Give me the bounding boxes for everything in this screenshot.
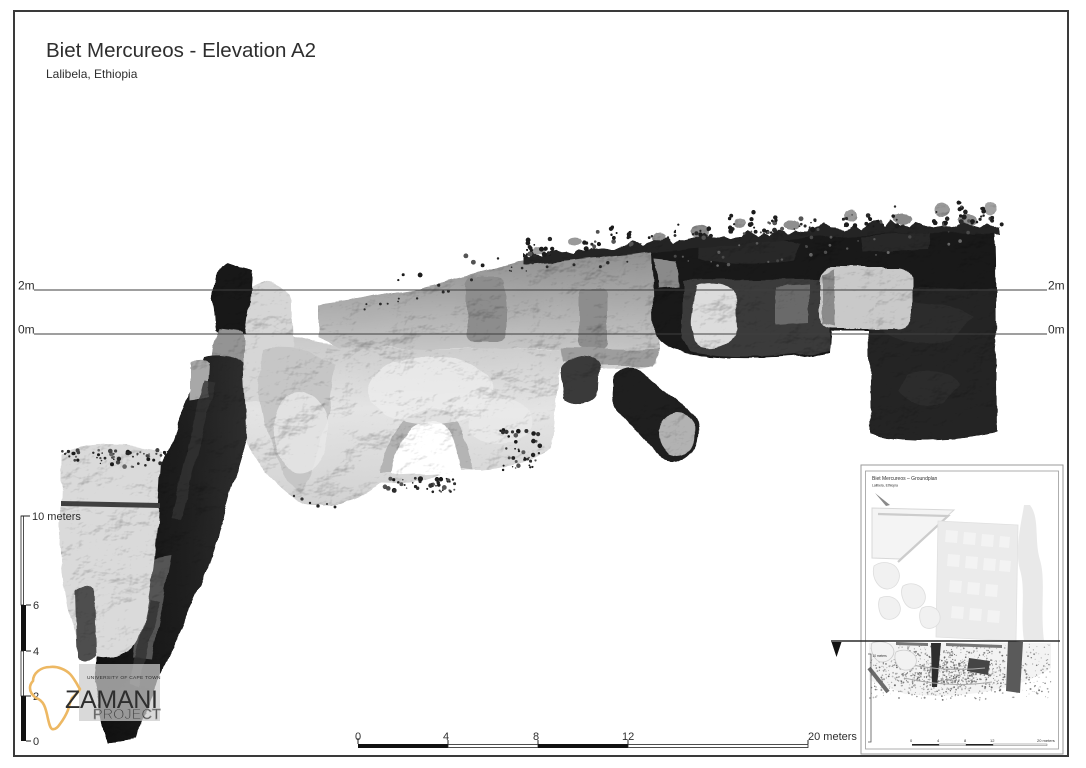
svg-text:4: 4 bbox=[33, 646, 39, 658]
svg-text:0: 0 bbox=[355, 731, 361, 743]
svg-text:0m: 0m bbox=[1048, 323, 1065, 337]
svg-text:20 meters: 20 meters bbox=[1037, 738, 1055, 743]
svg-text:PROJECT: PROJECT bbox=[93, 707, 161, 723]
svg-text:2m: 2m bbox=[1048, 279, 1065, 293]
svg-text:0m: 0m bbox=[18, 323, 35, 337]
svg-text:Biet Mercureos - Elevation A2: Biet Mercureos - Elevation A2 bbox=[46, 39, 316, 62]
svg-text:Lalibela, Ethiopia: Lalibela, Ethiopia bbox=[46, 67, 138, 81]
svg-text:20 meters: 20 meters bbox=[808, 731, 857, 743]
svg-text:8: 8 bbox=[533, 731, 539, 743]
svg-text:0: 0 bbox=[33, 736, 39, 748]
svg-text:10 meters: 10 meters bbox=[32, 511, 81, 523]
svg-text:12: 12 bbox=[990, 738, 995, 743]
svg-text:Lalibela, Ethiopia: Lalibela, Ethiopia bbox=[872, 484, 898, 488]
svg-text:12: 12 bbox=[622, 731, 634, 743]
svg-text:2m: 2m bbox=[18, 279, 35, 293]
svg-text:Biet Mercureos – Groundplan: Biet Mercureos – Groundplan bbox=[872, 476, 938, 482]
svg-text:10 meters: 10 meters bbox=[873, 654, 888, 658]
svg-text:UNIVERSITY OF CAPE TOWN: UNIVERSITY OF CAPE TOWN bbox=[87, 675, 161, 681]
svg-text:6: 6 bbox=[33, 600, 39, 612]
svg-text:4: 4 bbox=[443, 731, 449, 743]
